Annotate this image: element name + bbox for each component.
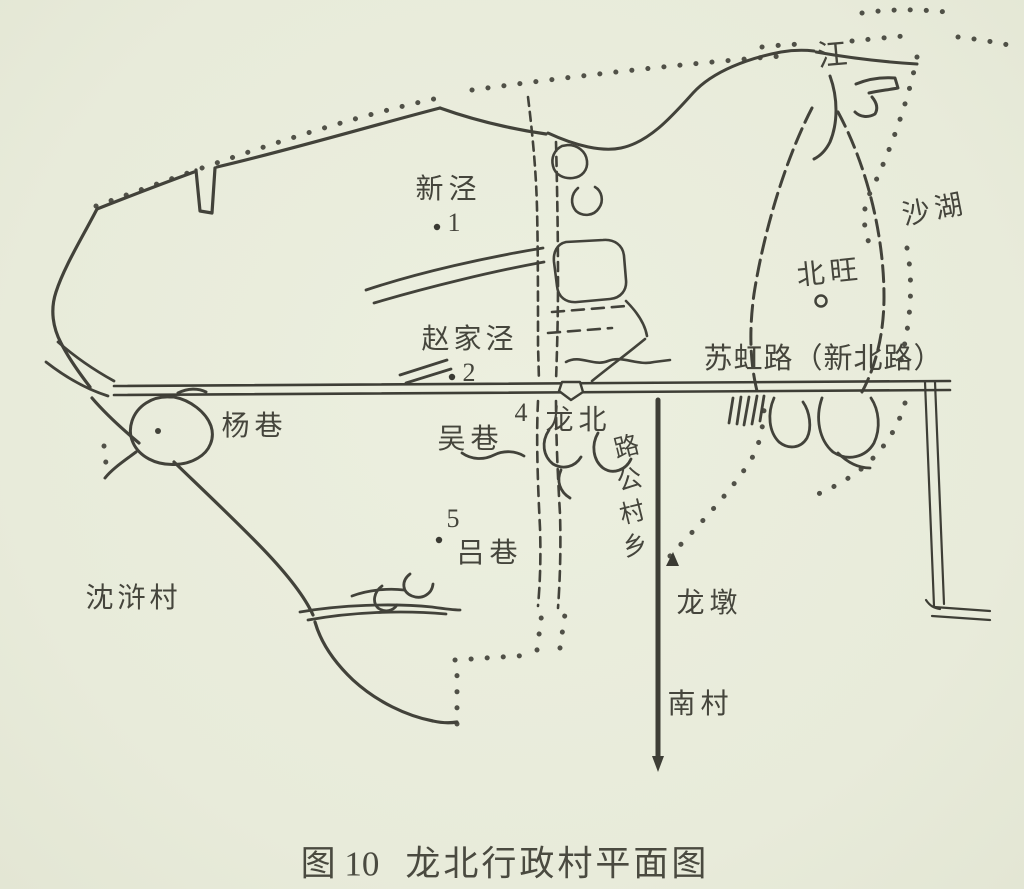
label-lvxiang: 吕巷	[451, 531, 522, 571]
figure-title: 龙北行政村平面图	[405, 836, 709, 887]
figure-caption: 图 10 龙北行政村平面图	[301, 836, 710, 887]
label-jiang: 江	[810, 28, 854, 75]
label-suhong-road: 苏虹路（新北路）	[698, 335, 943, 377]
label-wuxiang: 吴巷	[432, 417, 503, 457]
right-road-line	[925, 382, 990, 620]
rural-road-char: 公	[613, 462, 645, 500]
label-yangxiang: 杨巷	[216, 404, 287, 444]
label-xinjing: 新泾	[410, 167, 481, 207]
road-end-arrow	[652, 756, 664, 772]
figure-number: 图 10	[301, 836, 380, 887]
rural-road-char: 乡	[619, 527, 651, 565]
rural-road-char: 路	[611, 429, 643, 467]
point-5-number: 5	[447, 504, 460, 534]
central-creek	[528, 97, 670, 608]
beiwang-point-circle	[816, 296, 827, 307]
village-map: 江 新泾 1 沙湖 北旺 赵家泾 2 苏虹路（新北路） 杨巷 吴巷 4 龙北 路…	[0, 0, 1024, 889]
label-shenhucun: 沈浒村	[80, 576, 181, 616]
point-2-number: 2	[463, 358, 476, 388]
point-4-number: 4	[515, 398, 528, 428]
label-beiwang: 北旺	[790, 247, 865, 294]
label-longdun: 龙墩	[671, 581, 742, 621]
map-drawing	[0, 0, 1024, 889]
yangxiang-hamlet-outline	[105, 389, 212, 478]
label-nancun: 南村	[662, 682, 733, 722]
suhong-road-line	[114, 381, 950, 395]
label-zhaojiajing: 赵家泾	[416, 317, 517, 357]
rural-road-char: 村	[616, 494, 648, 532]
river-and-creek-lines	[548, 50, 917, 159]
triangle-marker	[666, 552, 679, 566]
label-longbei: 龙北	[540, 398, 611, 438]
point-1-number: 1	[448, 208, 461, 238]
